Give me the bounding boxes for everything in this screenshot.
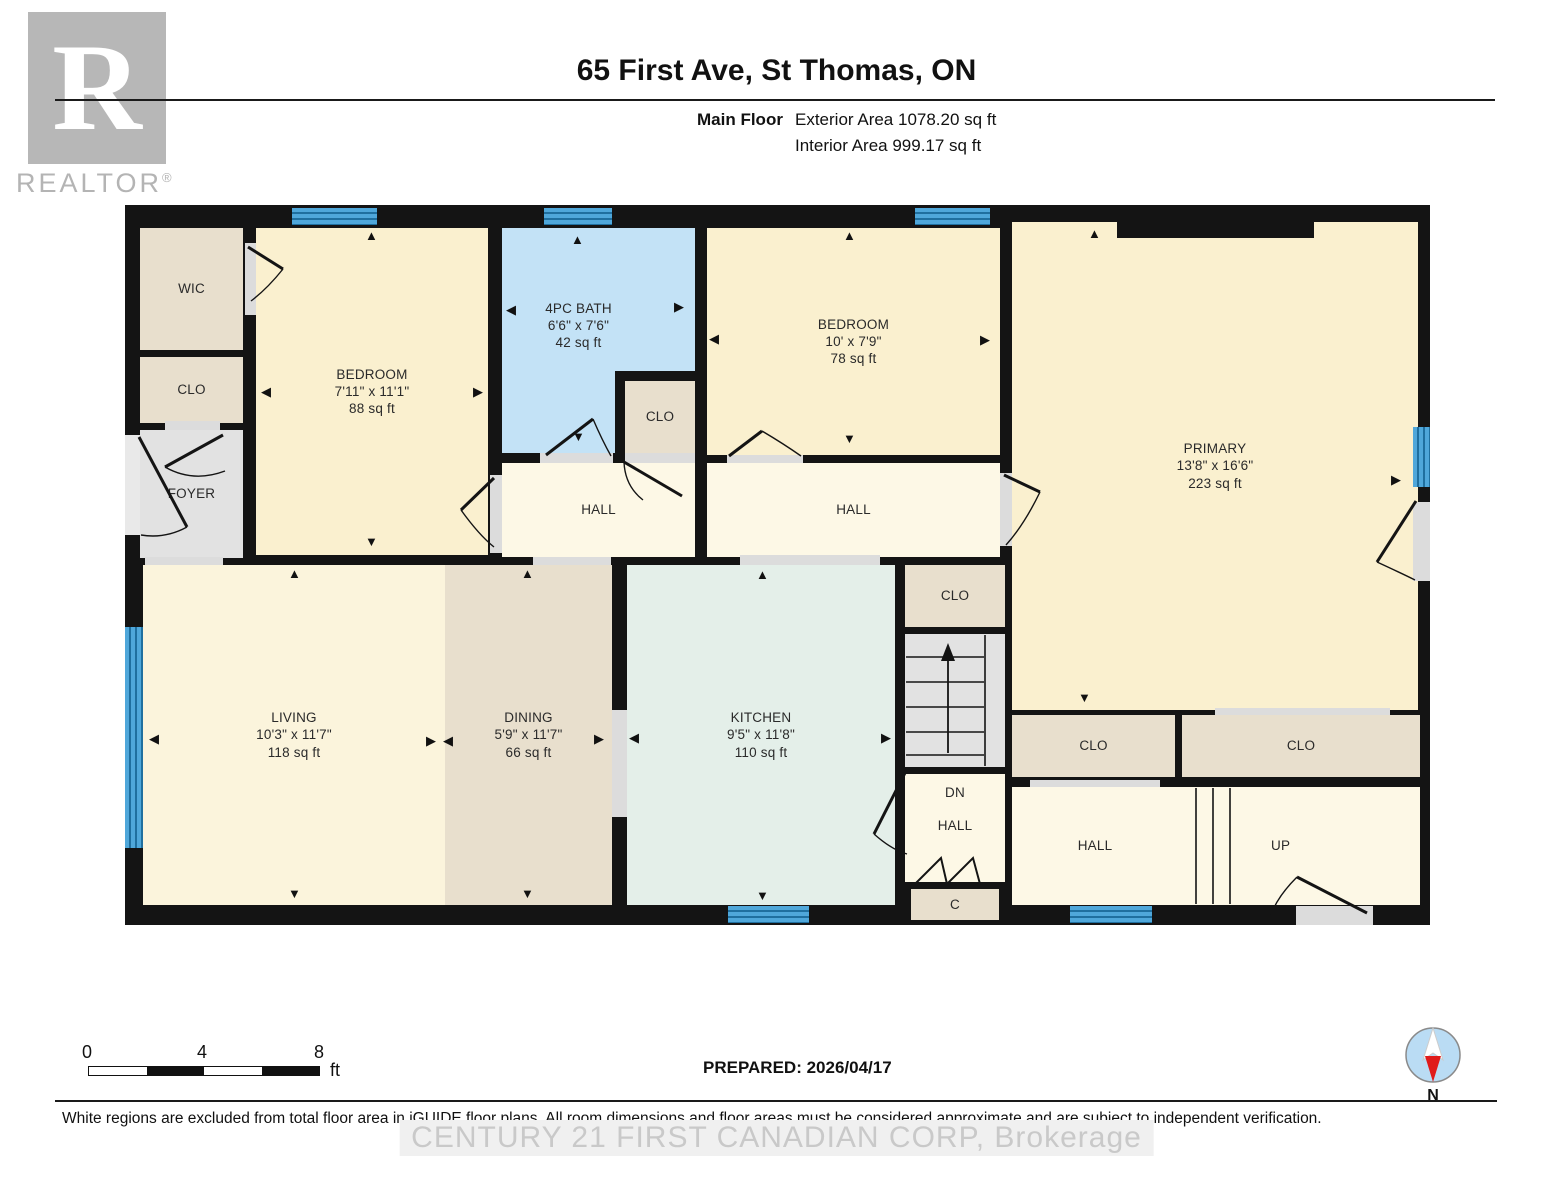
- floor-label: Main Floor: [697, 110, 783, 130]
- interior-area: Interior Area 999.17 sq ft: [795, 136, 981, 156]
- exterior-area: Exterior Area 1078.20 sq ft: [795, 110, 996, 130]
- scale-unit: ft: [330, 1060, 340, 1081]
- floor-plan: WIC CLO FOYER BEDROOM 7'11" x 11'1" 88 s…: [125, 205, 1430, 925]
- compass-icon: N: [1398, 1012, 1468, 1104]
- realtor-logo-r: R: [52, 26, 142, 150]
- footer-divider: [55, 1100, 1497, 1102]
- scale-tick-0: 0: [82, 1042, 92, 1063]
- scale-bar: [88, 1066, 320, 1076]
- door-swings-overlay: [125, 205, 1430, 925]
- registered-mark: ®: [162, 170, 175, 185]
- scale-tick-4: 4: [197, 1042, 207, 1063]
- page-title: 65 First Ave, St Thomas, ON: [0, 54, 1553, 88]
- scale-tick-8: 8: [314, 1042, 324, 1063]
- title-divider: [55, 99, 1495, 101]
- realtor-logo-text: REALTOR®: [16, 168, 175, 199]
- brokerage-watermark: CENTURY 21 FIRST CANADIAN CORP, Brokerag…: [399, 1120, 1154, 1156]
- stairs-direction-arrowhead: [941, 643, 955, 661]
- realtor-logo: R: [28, 12, 166, 164]
- prepared-date: PREPARED: 2026/04/17: [703, 1058, 892, 1078]
